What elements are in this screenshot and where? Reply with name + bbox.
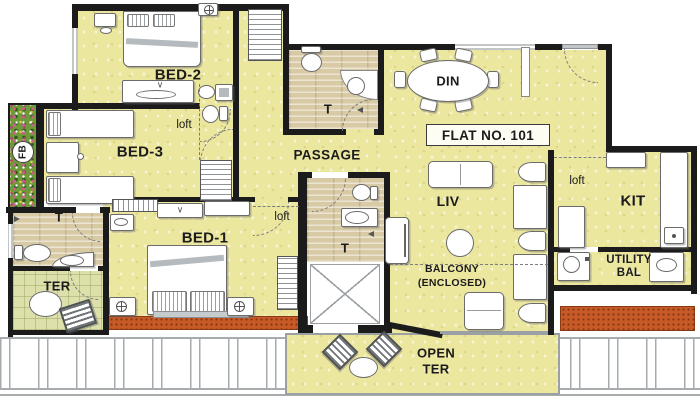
door-stop-icon [368,231,374,237]
window-glass-line [74,28,76,74]
toilet-label-top: T [324,102,332,117]
kitchen-door-leaf [606,152,646,168]
drain-dot [672,234,676,238]
wall-segment [378,44,384,135]
sink-icon [60,255,84,266]
toilet-tank [370,186,378,200]
balcony-edge-line [440,331,548,334]
room-label-open-terrace-1: OPEN [417,346,455,361]
wall-segment [298,172,307,330]
wardrobe [277,256,298,310]
room-label-bed3: BED-3 [117,144,164,161]
side-table [94,13,116,27]
toilet-icon [301,53,322,72]
shelf [204,201,250,216]
loveseat-seam [467,310,501,311]
dining-chair [394,71,406,88]
flower-bed-label: FB [18,145,29,159]
desk-bed3 [46,142,79,173]
armchair [513,185,547,229]
lamp-icon [116,301,127,312]
mirror-mark-icon: ∨ [177,205,184,216]
chair [518,303,546,323]
flat-number-plate: FLAT NO. 101 [426,124,550,146]
wall-segment [8,330,108,335]
armchair [513,254,547,300]
pillow [48,112,61,136]
chair [518,162,546,182]
wall-segment [548,150,554,335]
wardrobe [112,199,158,212]
side-unit-detail [219,88,229,97]
pillow [153,14,175,27]
room-label-bed1: BED-1 [182,230,229,247]
room-label-bed2: BED-2 [155,67,202,84]
wall-segment [691,146,697,294]
terrace-table [29,291,62,317]
floor-plan: ∨ ∨ [0,0,700,400]
utility-sink-icon [656,258,677,272]
wall-segment [374,129,384,135]
chair [518,231,546,251]
wall-segment [6,207,76,213]
wall-segment [283,129,346,135]
door-stop-icon [14,216,20,222]
room-label-din: DIN [436,74,459,89]
window-glass-line [9,224,11,258]
wall-segment [38,103,200,109]
pillow [190,291,225,312]
wall-segment [233,109,239,203]
room-label-utility-1: UTILITY [606,254,652,266]
wardrobe [200,160,232,201]
door-opening [313,325,358,333]
wall-segment [233,4,239,109]
wall-segment [358,325,392,333]
brick-planter-right [560,306,695,331]
pillow [48,178,61,202]
toilet-icon [23,244,51,262]
loft-label-3: loft [569,175,584,187]
partition-pillar [521,47,530,97]
toilet-label-mid: T [341,241,349,256]
pillow [152,291,187,312]
loft-dash-line [554,157,606,158]
flat-number-text: FLAT NO. 101 [442,128,534,143]
room-label-balcony-2: (ENCLOSED) [418,277,486,289]
sofa-seam [460,164,461,185]
lamp-icon [234,301,245,312]
brick-planter-left [108,316,308,330]
wall-segment [38,103,44,213]
wall-segment [535,44,562,50]
room-label-open-terrace-2: TER [423,362,450,377]
room-label-passage: PASSAGE [293,148,360,163]
wall-segment [348,172,384,178]
desk-chair [77,153,84,160]
sink-icon [347,77,365,95]
duct-cross-box [310,264,380,324]
toilet-icon [352,184,371,201]
toilet-tank [14,245,23,260]
fan-icon [204,5,214,15]
toilet-label-left: T [55,210,63,225]
pillow [127,14,149,27]
room-label-balcony-1: BALCONY [425,263,479,275]
terrace-table [349,357,378,378]
wall-segment [103,207,109,335]
loft-label-1: loft [176,119,191,131]
fridge [558,206,585,248]
room-label-liv: LIV [437,193,460,209]
side-table-knob [100,27,112,34]
loft-label-2: loft [274,211,289,223]
room-label-terrace: TER [44,279,71,294]
washing-machine-knob [585,257,589,261]
dresser-plate [136,90,176,99]
coffee-table [446,229,474,257]
wall-segment [298,325,313,333]
dresser-plate [114,218,128,226]
toilet-tank [301,46,321,53]
tv-screen-line [404,224,406,257]
wall-segment [283,44,289,135]
wall-segment [606,44,612,152]
loveseat [464,292,504,330]
stool [198,85,215,99]
washing-machine-drum [563,256,580,273]
room-label-utility-2: BAL [617,267,642,279]
sink-icon [345,211,369,224]
room-label-kit: KIT [620,193,645,210]
wall-segment [548,285,691,291]
wardrobe [248,9,282,61]
